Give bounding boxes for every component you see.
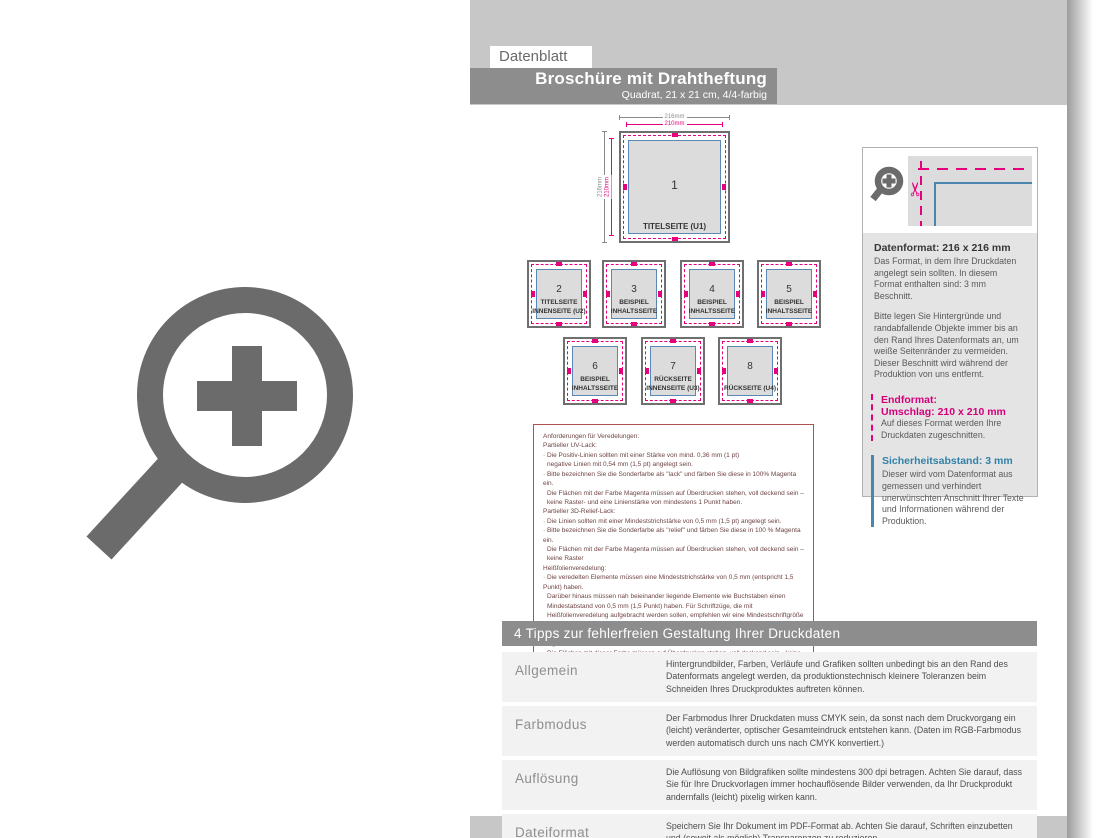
datenformat-heading: Datenformat: 216 x 216 mm xyxy=(874,242,1026,254)
tips-row-allgemein: Allgemein Hintergrundbilder, Farben, Ver… xyxy=(502,652,1037,702)
page-number: 6 xyxy=(565,361,625,372)
page-title: Broschüre mit Drahtheftung xyxy=(470,68,767,89)
page-caption: BEISPIEL INHALTSSEITE xyxy=(565,376,625,394)
page-caption: BEISPIEL INHALTSSEITE xyxy=(759,299,819,317)
page-diagram-5: 5 BEISPIEL INHALTSSEITE xyxy=(757,260,821,328)
page-caption: TITELSEITE (U1) xyxy=(621,222,728,233)
page-caption: BEISPIEL INHALTSSEITE xyxy=(604,299,664,317)
page-number: 1 xyxy=(621,178,728,192)
zoom-in-magnifier-icon xyxy=(85,275,375,575)
dimension-inner-width: 210mm xyxy=(626,124,723,125)
page-subtitle: Quadrat, 21 x 21 cm, 4/4-farbig xyxy=(470,89,767,102)
tips-table: Allgemein Hintergrundbilder, Farben, Ver… xyxy=(502,652,1037,838)
page-diagram-4: 4 BEISPIEL INHALTSSEITE xyxy=(680,260,744,328)
page-diagram-3: 3 BEISPIEL INHALTSSEITE xyxy=(602,260,666,328)
sicherheitsabstand-heading: Sicherheitsabstand: 3 mm xyxy=(882,455,1026,467)
zoom-in-magnifier-small-icon xyxy=(868,166,910,210)
page-number: 7 xyxy=(643,361,703,372)
title-banner: Broschüre mit Drahtheftung Quadrat, 21 x… xyxy=(470,68,777,104)
requirements-heading: Anforderungen für Veredelungen: xyxy=(543,432,804,441)
endformat-block: Endformat: Umschlag: 210 x 210 mm Auf di… xyxy=(871,394,1026,441)
page-caption: BEISPIEL INHALTSSEITE xyxy=(682,299,742,317)
tips-row-aufloesung: Auflösung Die Auflösung von Bildgrafiken… xyxy=(502,760,1037,810)
endformat-heading-2: Umschlag: 210 x 210 mm xyxy=(881,406,1026,418)
endformat-paragraph: Auf dieses Format werden Ihre Druckdaten… xyxy=(881,418,1026,441)
page-diagram-1: 1 TITELSEITE (U1) xyxy=(619,131,730,243)
tips-row-farbmodus: Farbmodus Der Farbmodus Ihrer Druckdaten… xyxy=(502,706,1037,756)
page-diagram-7: 7 RÜCKSEITE INNENSEITE (U3) xyxy=(641,337,705,405)
page-caption: TITELSEITE INNENSEITE (U2) xyxy=(529,299,589,317)
page-number: 3 xyxy=(604,284,664,295)
sicherheitsabstand-paragraph: Dieser wird vom Datenformat aus gemessen… xyxy=(882,469,1026,527)
endformat-heading-1: Endformat: xyxy=(881,394,1026,406)
tips-row-text: Speichern Sie Ihr Dokument im PDF-Format… xyxy=(654,814,1037,838)
page-diagram-6: 6 BEISPIEL INHALTSSEITE xyxy=(563,337,627,405)
tips-row-label: Farbmodus xyxy=(502,706,654,756)
page-caption: RÜCKSEITE (U4) xyxy=(720,385,780,394)
tips-row-text: Hintergrundbilder, Farben, Verläufe und … xyxy=(654,652,1037,702)
datasheet-screenshot: Datenblatt Broschüre mit Drahtheftung Qu… xyxy=(0,0,1117,838)
page-number: 2 xyxy=(529,284,589,295)
backdrop-shadow xyxy=(1067,0,1093,838)
bleed-line-horizontal xyxy=(918,168,1032,170)
page-diagram-8: 8 RÜCKSEITE (U4) xyxy=(718,337,782,405)
tips-header: 4 Tipps zur fehlerfreien Gestaltung Ihre… xyxy=(502,621,1037,646)
tips-row-dateiformat: Dateiformat Speichern Sie Ihr Dokument i… xyxy=(502,814,1037,838)
format-info-panel: ✂ Datenformat: 216 x 216 mm Das Format, … xyxy=(862,147,1038,497)
datasheet-tab-label: Datenblatt xyxy=(490,46,592,68)
datenformat-paragraph-2: Bitte legen Sie Hintergründe und randabf… xyxy=(874,311,1026,381)
final-format-corner xyxy=(934,182,1032,226)
page-caption: RÜCKSEITE INNENSEITE (U3) xyxy=(643,376,703,394)
datenformat-paragraph-1: Das Format, in dem Ihre Druckdaten angel… xyxy=(874,256,1026,302)
tips-row-label: Allgemein xyxy=(502,652,654,702)
scissors-icon: ✂ xyxy=(908,181,927,197)
corner-detail-header: ✂ xyxy=(863,148,1037,233)
dimension-outer-width: 216mm xyxy=(619,117,730,118)
sicherheitsabstand-block: Sicherheitsabstand: 3 mm Dieser wird vom… xyxy=(871,455,1026,527)
page-number: 5 xyxy=(759,284,819,295)
tips-row-label: Auflösung xyxy=(502,760,654,810)
page-number: 8 xyxy=(720,361,780,372)
page-diagram-2: 2 TITELSEITE INNENSEITE (U2) xyxy=(527,260,591,328)
page-number: 4 xyxy=(682,284,742,295)
dimension-inner-height: 210mm xyxy=(611,138,612,236)
corner-detail-graphic: ✂ xyxy=(908,156,1032,226)
format-info-text: Datenformat: 216 x 216 mm Das Format, in… xyxy=(863,233,1037,496)
tips-row-text: Der Farbmodus Ihrer Druckdaten muss CMYK… xyxy=(654,706,1037,756)
tips-row-text: Die Auflösung von Bildgrafiken sollte mi… xyxy=(654,760,1037,810)
tips-row-label: Dateiformat xyxy=(502,814,654,838)
